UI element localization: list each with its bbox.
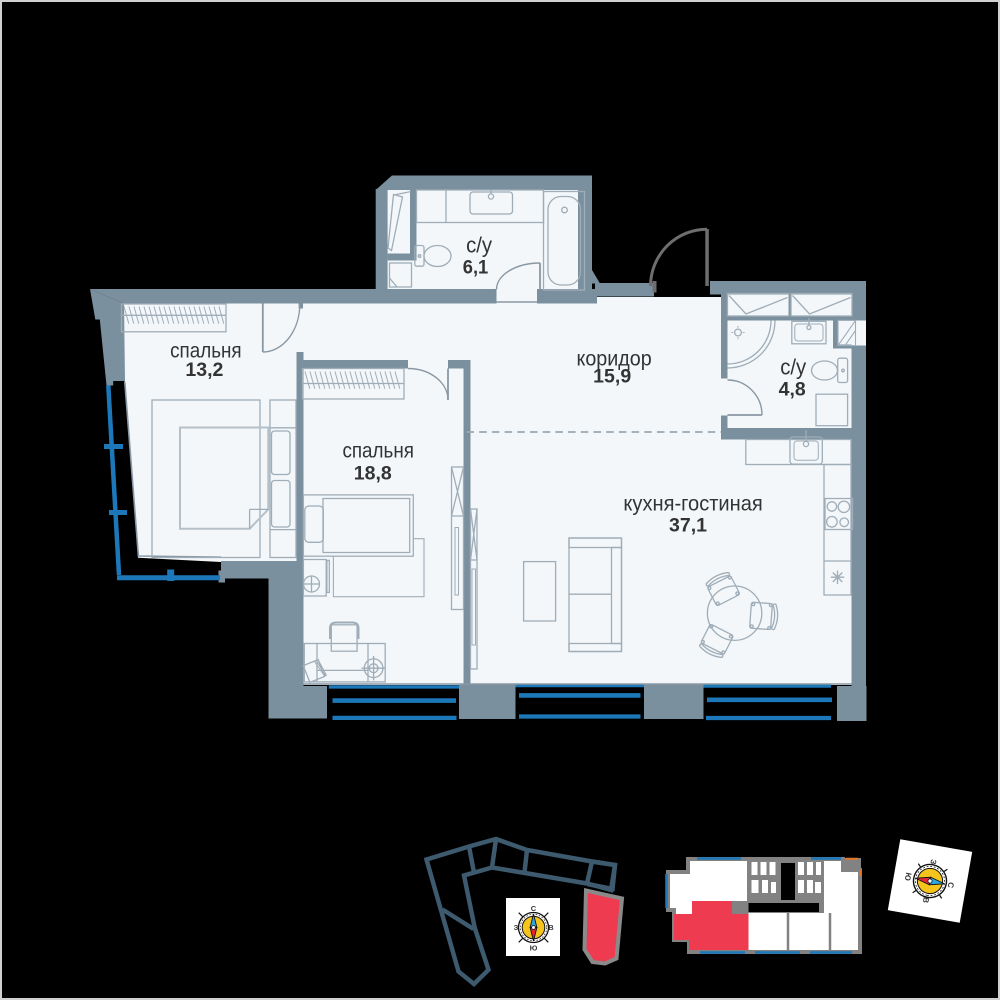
svg-text:З: З: [514, 923, 519, 932]
svg-text:с/у: с/у: [780, 355, 806, 380]
svg-text:Ю: Ю: [530, 943, 538, 952]
svg-text:15,9: 15,9: [593, 367, 631, 388]
svg-text:В: В: [548, 923, 554, 932]
svg-text:С: С: [531, 904, 537, 913]
svg-text:13,2: 13,2: [185, 360, 223, 381]
svg-text:Ю: Ю: [903, 872, 913, 882]
svg-text:4,8: 4,8: [779, 380, 806, 401]
svg-text:кухня-гостиная: кухня-гостиная: [623, 492, 762, 516]
svg-text:с/у: с/у: [466, 233, 492, 258]
svg-text:6,1: 6,1: [463, 258, 489, 279]
svg-text:18,8: 18,8: [354, 464, 392, 485]
svg-text:37,1: 37,1: [669, 516, 707, 537]
svg-text:спальня: спальня: [342, 439, 414, 463]
